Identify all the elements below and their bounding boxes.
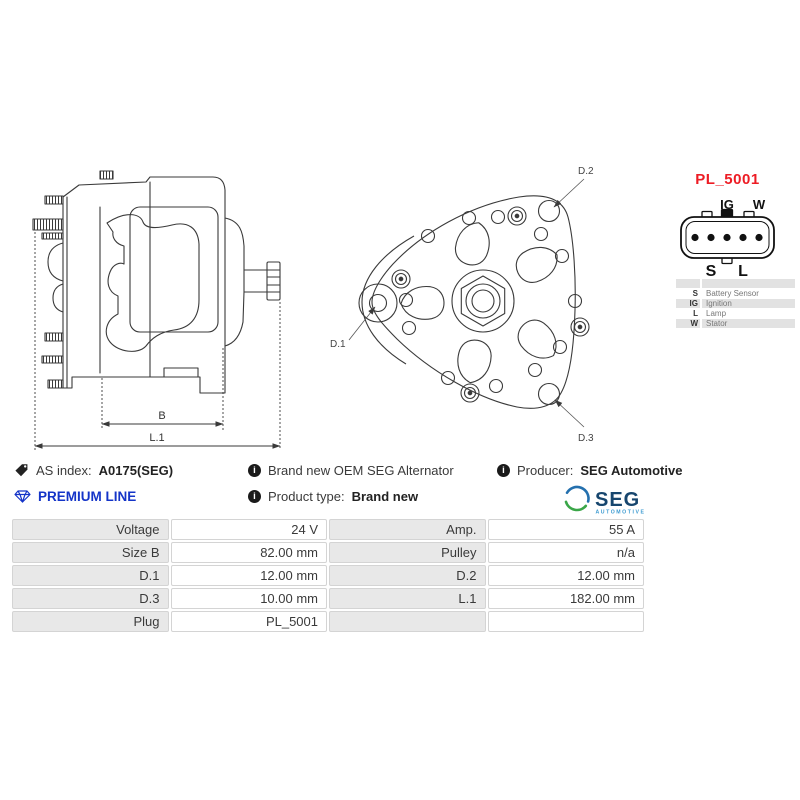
spec-value: 12.00 mm <box>171 565 328 586</box>
premium-line-row: PREMIUM LINE <box>14 488 136 504</box>
product-type-label: Product type: <box>268 489 345 504</box>
d2-label: D.2 <box>578 166 594 177</box>
plug-connector-diagram: IG W S L <box>660 195 800 287</box>
seg-logo-text: SEG <box>595 489 640 511</box>
alternator-side-outline <box>33 171 280 393</box>
product-type-row: i Product type: Brand new <box>248 488 418 504</box>
info-icon: i <box>248 464 261 477</box>
spec-label: Pulley <box>329 542 486 563</box>
legend-row: IG Ignition <box>676 299 795 308</box>
side-view-drawing: B L.1 <box>28 168 290 460</box>
spec-value <box>488 611 645 632</box>
legend-row: S Battery Sensor <box>676 289 795 298</box>
legend-row: W Stator <box>676 319 795 328</box>
product-page: B L.1 <box>0 0 800 800</box>
tag-icon <box>14 463 29 478</box>
spec-value: 24 V <box>171 519 328 540</box>
producer-label: Producer: <box>517 463 573 478</box>
spec-label: Plug <box>12 611 169 632</box>
brand-new-row: i Brand new OEM SEG Alternator <box>248 462 454 478</box>
alternator-front-outline <box>359 196 589 409</box>
table-row: D.1 12.00 mm D.2 12.00 mm <box>12 565 644 586</box>
specs-table: Voltage 24 V Amp. 55 A Size B 82.00 mm P… <box>10 517 646 634</box>
producer-row: i Producer: SEG Automotive <box>497 462 682 478</box>
spec-value: 182.00 mm <box>488 588 645 609</box>
spec-label: D.2 <box>329 565 486 586</box>
table-row: Size B 82.00 mm Pulley n/a <box>12 542 644 563</box>
spec-value: PL_5001 <box>171 611 328 632</box>
pin-label-s: S <box>706 263 717 280</box>
spec-label: Size B <box>12 542 169 563</box>
product-type-value: Brand new <box>352 489 418 504</box>
spec-value: n/a <box>488 542 645 563</box>
plug-legend: S Battery Sensor IG Ignition L Lamp W St… <box>676 279 795 329</box>
d3-label: D.3 <box>578 433 594 444</box>
as-index-label: AS index: <box>36 463 92 478</box>
producer-value: SEG Automotive <box>580 463 682 478</box>
spec-label: D.3 <box>12 588 169 609</box>
mounting-studs <box>33 171 113 388</box>
spec-value: 55 A <box>488 519 645 540</box>
vent-holes <box>400 211 582 393</box>
spec-label: L.1 <box>329 588 486 609</box>
seg-logo-subtext: AUTOMOTIVE <box>596 510 646 516</box>
spec-label: Amp. <box>329 519 486 540</box>
as-index-row: AS index: A0175(SEG) <box>14 462 173 478</box>
diamond-icon <box>14 490 31 503</box>
premium-line-link[interactable]: PREMIUM LINE <box>38 489 136 504</box>
pin-label-l: L <box>738 263 748 280</box>
info-icon: i <box>248 490 261 503</box>
table-row: D.3 10.00 mm L.1 182.00 mm <box>12 588 644 609</box>
pin-label-w: W <box>753 197 766 212</box>
dim-l1-label: L.1 <box>149 432 164 444</box>
brand-new-text: Brand new OEM SEG Alternator <box>268 463 454 478</box>
legend-header-row <box>676 279 795 288</box>
table-row: Voltage 24 V Amp. 55 A <box>12 519 644 540</box>
as-index-value: A0175(SEG) <box>99 463 173 478</box>
spec-label <box>329 611 486 632</box>
spec-label: Voltage <box>12 519 169 540</box>
spec-value: 12.00 mm <box>488 565 645 586</box>
spec-label: D.1 <box>12 565 169 586</box>
spec-value: 10.00 mm <box>171 588 328 609</box>
d1-label: D.1 <box>330 339 346 350</box>
info-icon: i <box>497 464 510 477</box>
spec-value: 82.00 mm <box>171 542 328 563</box>
pin-label-ig: IG <box>720 197 734 212</box>
table-row: Plug PL_5001 <box>12 611 644 632</box>
plug-code-title: PL_5001 <box>660 171 795 188</box>
legend-row: L Lamp <box>676 309 795 318</box>
seg-automotive-logo: SEG AUTOMOTIVE <box>563 482 663 518</box>
front-view-drawing: D.2 D.1 D.3 <box>330 155 630 455</box>
dim-b-label: B <box>158 410 165 422</box>
